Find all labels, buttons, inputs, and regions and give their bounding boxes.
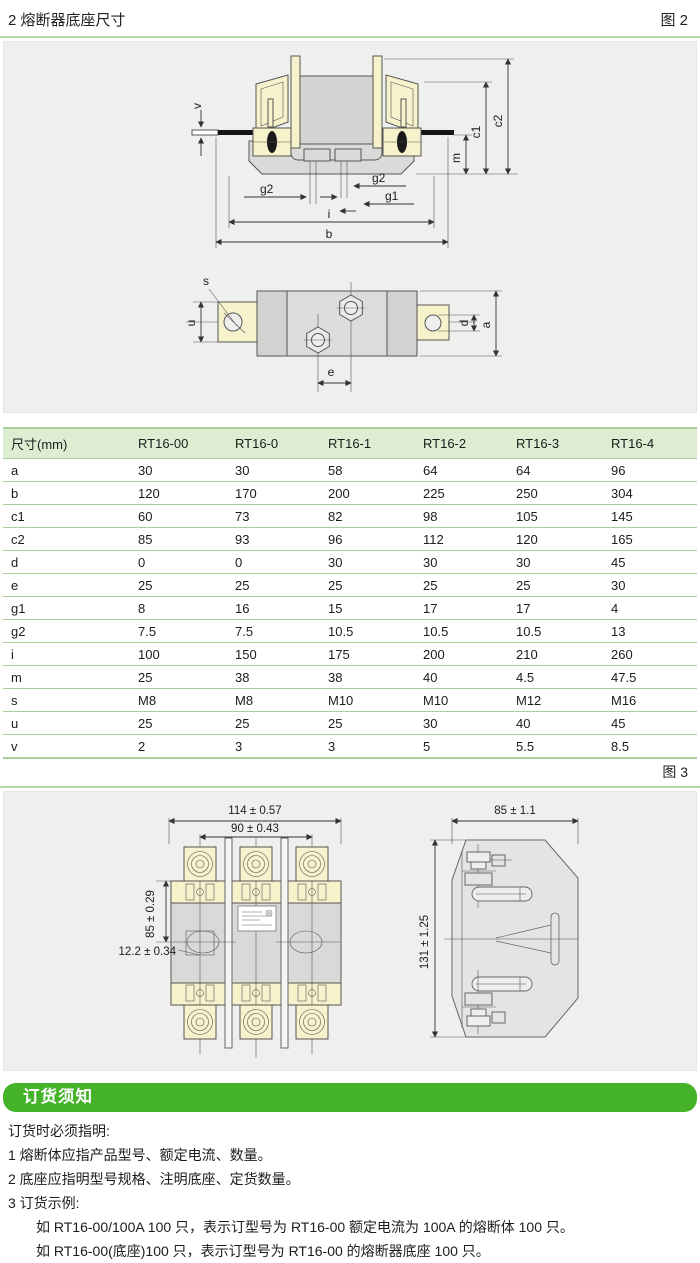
cell: 17 [508,597,603,620]
fig2-section-view [192,56,454,204]
table-row: c160738298105145 [3,505,697,528]
fig2-panel: v g2 g2 g1 i b m c1 c2 [3,41,697,413]
cell: M16 [603,689,697,712]
cell: 225 [415,482,508,505]
table-row: e252525252530 [3,574,697,597]
divider [0,786,700,788]
cell: 30 [320,551,415,574]
table-header-row: 尺寸(mm)RT16-00RT16-0RT16-1RT16-2RT16-3RT1… [3,428,697,459]
cell: 25 [130,574,227,597]
cell: 98 [415,505,508,528]
cell: 4 [603,597,697,620]
ordering-example: 如 RT16-00(底座)100 只，表示订型号为 RT16-00 的熔断器底座… [8,1239,692,1263]
table-row: g27.57.510.510.510.513 [3,620,697,643]
column-header: RT16-2 [415,428,508,459]
row-label: g1 [3,597,130,620]
cell: M8 [227,689,320,712]
cell: 96 [320,528,415,551]
fig2-drawing: v g2 g2 g1 i b m c1 c2 [4,42,698,412]
fig3-drawing: 114 ± 0.57 90 ± 0.43 [4,792,698,1070]
cell: 64 [508,459,603,482]
page-header: 2 熔断器底座尺寸 图 2 [0,0,700,36]
dim-label-c2: c2 [491,114,505,127]
fig3-side-view: 85 ± 1.1 131 ± 1.25 [419,805,578,1037]
ordering-banner-title: 订货须知 [23,1088,93,1106]
cell: 96 [603,459,697,482]
dim-label-85v: 85 ± 0.29 [145,890,157,938]
column-header: RT16-0 [227,428,320,459]
cell: 5 [415,735,508,759]
cell: 210 [508,643,603,666]
row-label: b [3,482,130,505]
cell: 250 [508,482,603,505]
dim-label-i: i [328,207,331,221]
ordering-line: 2 底座应指明型号规格、注明底座、定货数量。 [8,1167,692,1191]
table-row: d0030303045 [3,551,697,574]
column-header: RT16-1 [320,428,415,459]
column-header: 尺寸(mm) [3,428,130,459]
cell: 260 [603,643,697,666]
table-row: i100150175200210260 [3,643,697,666]
table-body: a303058646496b120170200225250304c1607382… [3,459,697,759]
cell: 30 [508,551,603,574]
cell: 304 [603,482,697,505]
column-header: RT16-3 [508,428,603,459]
row-label: d [3,551,130,574]
row-label: c2 [3,528,130,551]
fig3-front-view: 114 ± 0.57 90 ± 0.43 [119,805,341,1058]
row-label: i [3,643,130,666]
dim-label-s: s [203,274,209,288]
fig3-panel: 114 ± 0.57 90 ± 0.43 [3,791,697,1071]
dim-label-c1: c1 [469,125,483,138]
dim-label-a: a [479,321,493,328]
cell: 25 [508,574,603,597]
cell: M8 [130,689,227,712]
row-label: m [3,666,130,689]
cell: 3 [320,735,415,759]
cell: 25 [130,712,227,735]
row-label: g2 [3,620,130,643]
cell: 105 [508,505,603,528]
cell: 73 [227,505,320,528]
cell: 47.5 [603,666,697,689]
cell: 175 [320,643,415,666]
nameplate [238,906,276,931]
dim-label-u: u [184,320,198,327]
cell: 38 [227,666,320,689]
row-label: a [3,459,130,482]
dim-label-114: 114 ± 0.57 [228,805,281,817]
cell: 15 [320,597,415,620]
cell: 10.5 [415,620,508,643]
cell: 7.5 [130,620,227,643]
cell: 100 [130,643,227,666]
cell: M10 [320,689,415,712]
page-title: 2 熔断器底座尺寸 [8,9,126,30]
divider [0,36,700,38]
fig3-label: 图 3 [662,764,688,780]
dim-label-85h: 85 ± 1.1 [494,805,535,817]
row-label: e [3,574,130,597]
table-row: v23355.58.5 [3,735,697,759]
column-header: RT16-00 [130,428,227,459]
cell: 0 [130,551,227,574]
table-row: sM8M8M10M10M12M16 [3,689,697,712]
row-label: c1 [3,505,130,528]
cell: 40 [415,666,508,689]
dim-label-e: e [328,365,335,379]
ordering-example: 如 RT16-00/100A 100 只，表示订型号为 RT16-00 额定电流… [8,1215,692,1239]
table-row: c2859396112120165 [3,528,697,551]
dim-label-g2-right: g2 [372,171,386,185]
cell: 0 [227,551,320,574]
cell: 8 [130,597,227,620]
dim-label-g2-left: g2 [260,182,274,196]
cell: 25 [415,574,508,597]
dim-label-b: b [326,227,333,241]
cell: 16 [227,597,320,620]
cell: 25 [320,712,415,735]
dim-label-m: m [449,153,463,163]
cell: 82 [320,505,415,528]
ordering-line: 1 熔断体应指产品型号、额定电流、数量。 [8,1143,692,1167]
table-row: m253838404.547.5 [3,666,697,689]
fig3-label-row: 图 3 [0,759,700,786]
cell: 145 [603,505,697,528]
ordering-line: 3 订货示例: [8,1191,692,1215]
ordering-banner: 订货须知 [3,1083,697,1112]
dim-label-g1: g1 [385,189,399,203]
cell: 120 [130,482,227,505]
cell: 200 [320,482,415,505]
row-label: v [3,735,130,759]
row-label: u [3,712,130,735]
table-row: u252525304045 [3,712,697,735]
cell: 30 [415,551,508,574]
cell: 60 [130,505,227,528]
cell: 25 [227,574,320,597]
cell: 17 [415,597,508,620]
cell: 112 [415,528,508,551]
cell: 10.5 [320,620,415,643]
cell: M12 [508,689,603,712]
dimension-table: 尺寸(mm)RT16-00RT16-0RT16-1RT16-2RT16-3RT1… [3,427,697,759]
cell: 120 [508,528,603,551]
cell: 30 [130,459,227,482]
fig2-label: 图 2 [660,9,688,30]
row-label: s [3,689,130,712]
cell: 85 [130,528,227,551]
cell: 10.5 [508,620,603,643]
cell: 2 [130,735,227,759]
cell: 200 [415,643,508,666]
cell: 30 [227,459,320,482]
ordering-text: 订货时必须指明: 1 熔断体应指产品型号、额定电流、数量。 2 底座应指明型号规… [0,1112,700,1263]
table-row: a303058646496 [3,459,697,482]
ordering-line: 订货时必须指明: [8,1119,692,1143]
cell: 45 [603,712,697,735]
cell: 25 [320,574,415,597]
cell: 3 [227,735,320,759]
column-header: RT16-4 [603,428,697,459]
cell: 30 [415,712,508,735]
cell: 13 [603,620,697,643]
cell: 38 [320,666,415,689]
cell: 170 [227,482,320,505]
dim-label-d: d [457,320,471,327]
dim-label-12-2: 12.2 ± 0.34 [119,946,177,958]
cell: 25 [227,712,320,735]
cell: 25 [130,666,227,689]
cell: 93 [227,528,320,551]
cell: 64 [415,459,508,482]
cell: 40 [508,712,603,735]
dim-label-v: v [190,103,204,109]
cell: 58 [320,459,415,482]
cell: 165 [603,528,697,551]
table-row: g18161517174 [3,597,697,620]
cell: M10 [415,689,508,712]
cell: 8.5 [603,735,697,759]
cell: 7.5 [227,620,320,643]
cell: 4.5 [508,666,603,689]
cell: 5.5 [508,735,603,759]
table-row: b120170200225250304 [3,482,697,505]
cell: 150 [227,643,320,666]
cell: 30 [603,574,697,597]
dim-label-131: 131 ± 1.25 [419,915,431,969]
cell: 45 [603,551,697,574]
dim-label-90: 90 ± 0.43 [231,823,279,835]
